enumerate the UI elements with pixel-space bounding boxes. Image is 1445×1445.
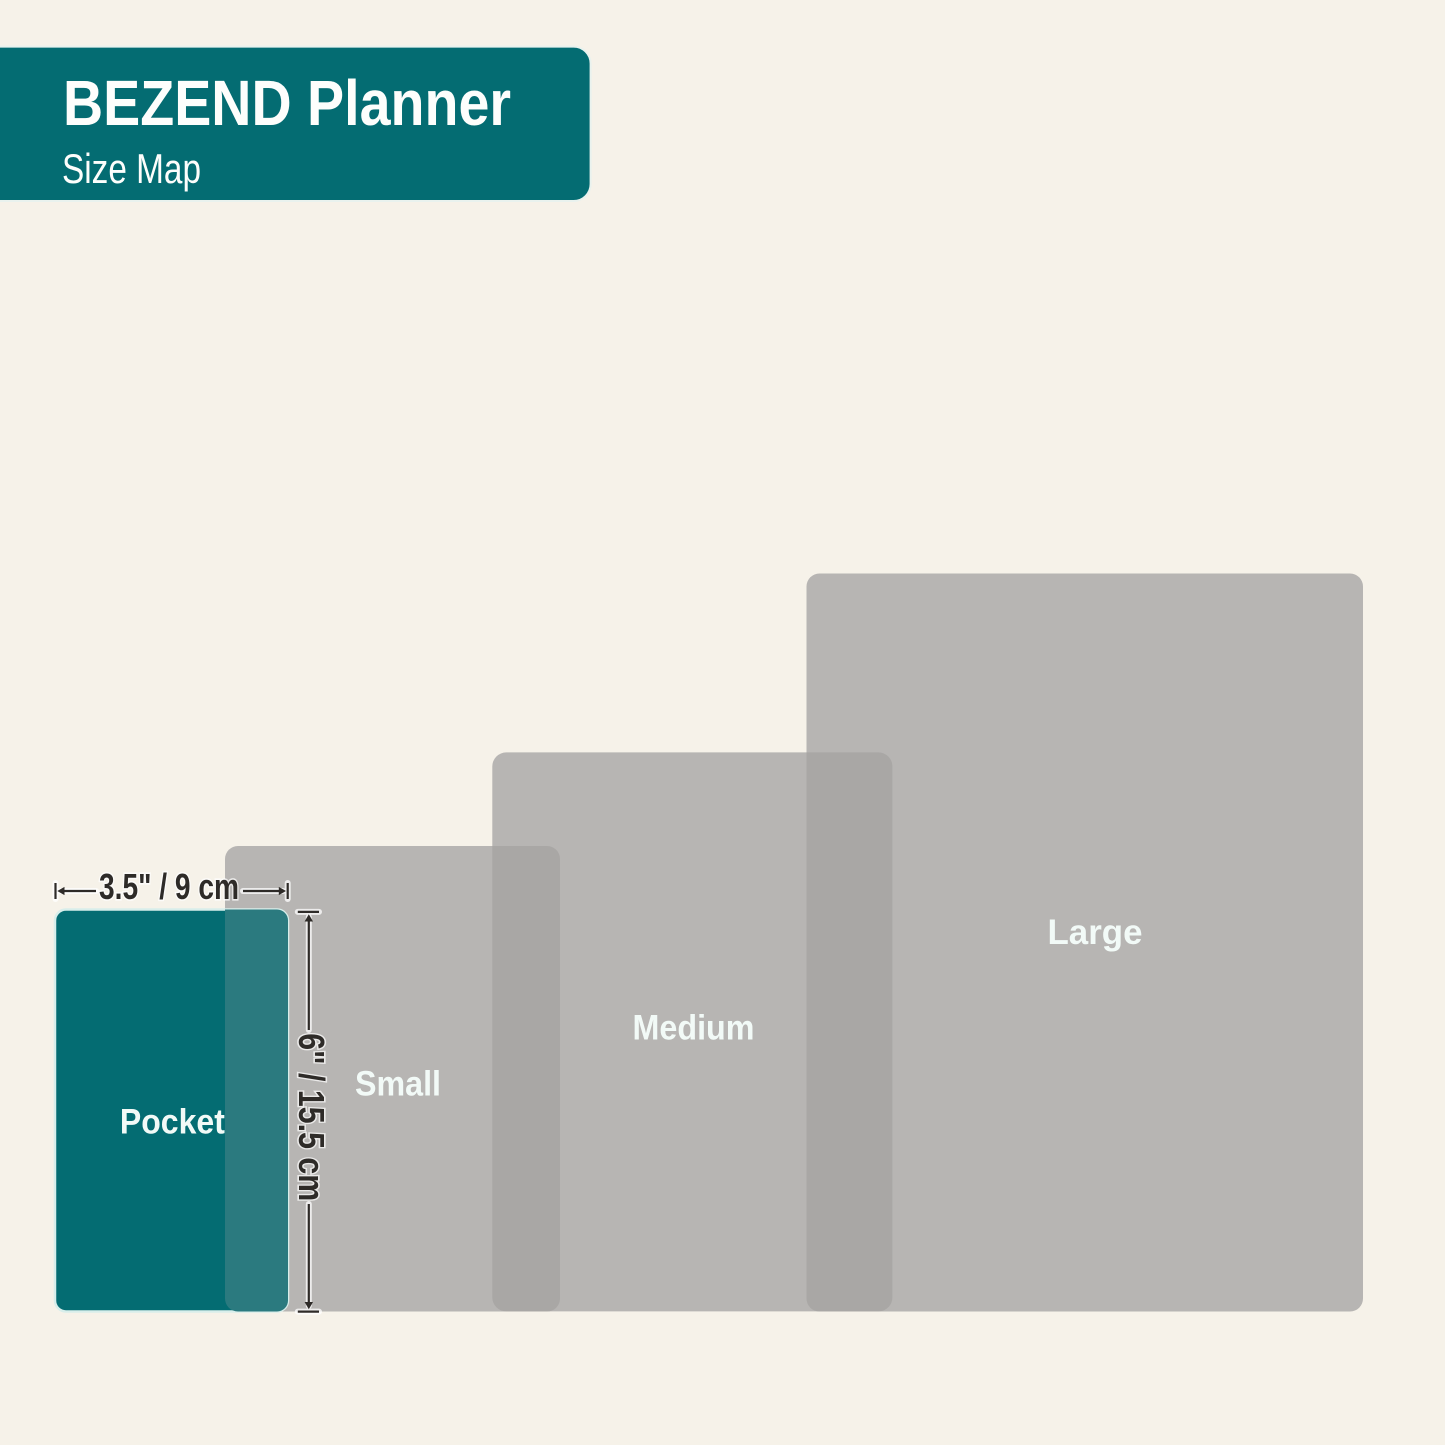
svg-text:Size Map: Size Map xyxy=(62,145,201,192)
svg-text:BEZEND Planner: BEZEND Planner xyxy=(63,67,511,139)
svg-text:3.5" / 9 cm: 3.5" / 9 cm xyxy=(99,866,239,907)
svg-text:Pocket: Pocket xyxy=(120,1103,225,1142)
svg-text:Small: Small xyxy=(355,1065,441,1104)
svg-text:Medium: Medium xyxy=(633,1009,755,1048)
svg-text:6" / 15.5 cm: 6" / 15.5 cm xyxy=(291,1033,332,1201)
svg-text:Large: Large xyxy=(1048,913,1143,952)
